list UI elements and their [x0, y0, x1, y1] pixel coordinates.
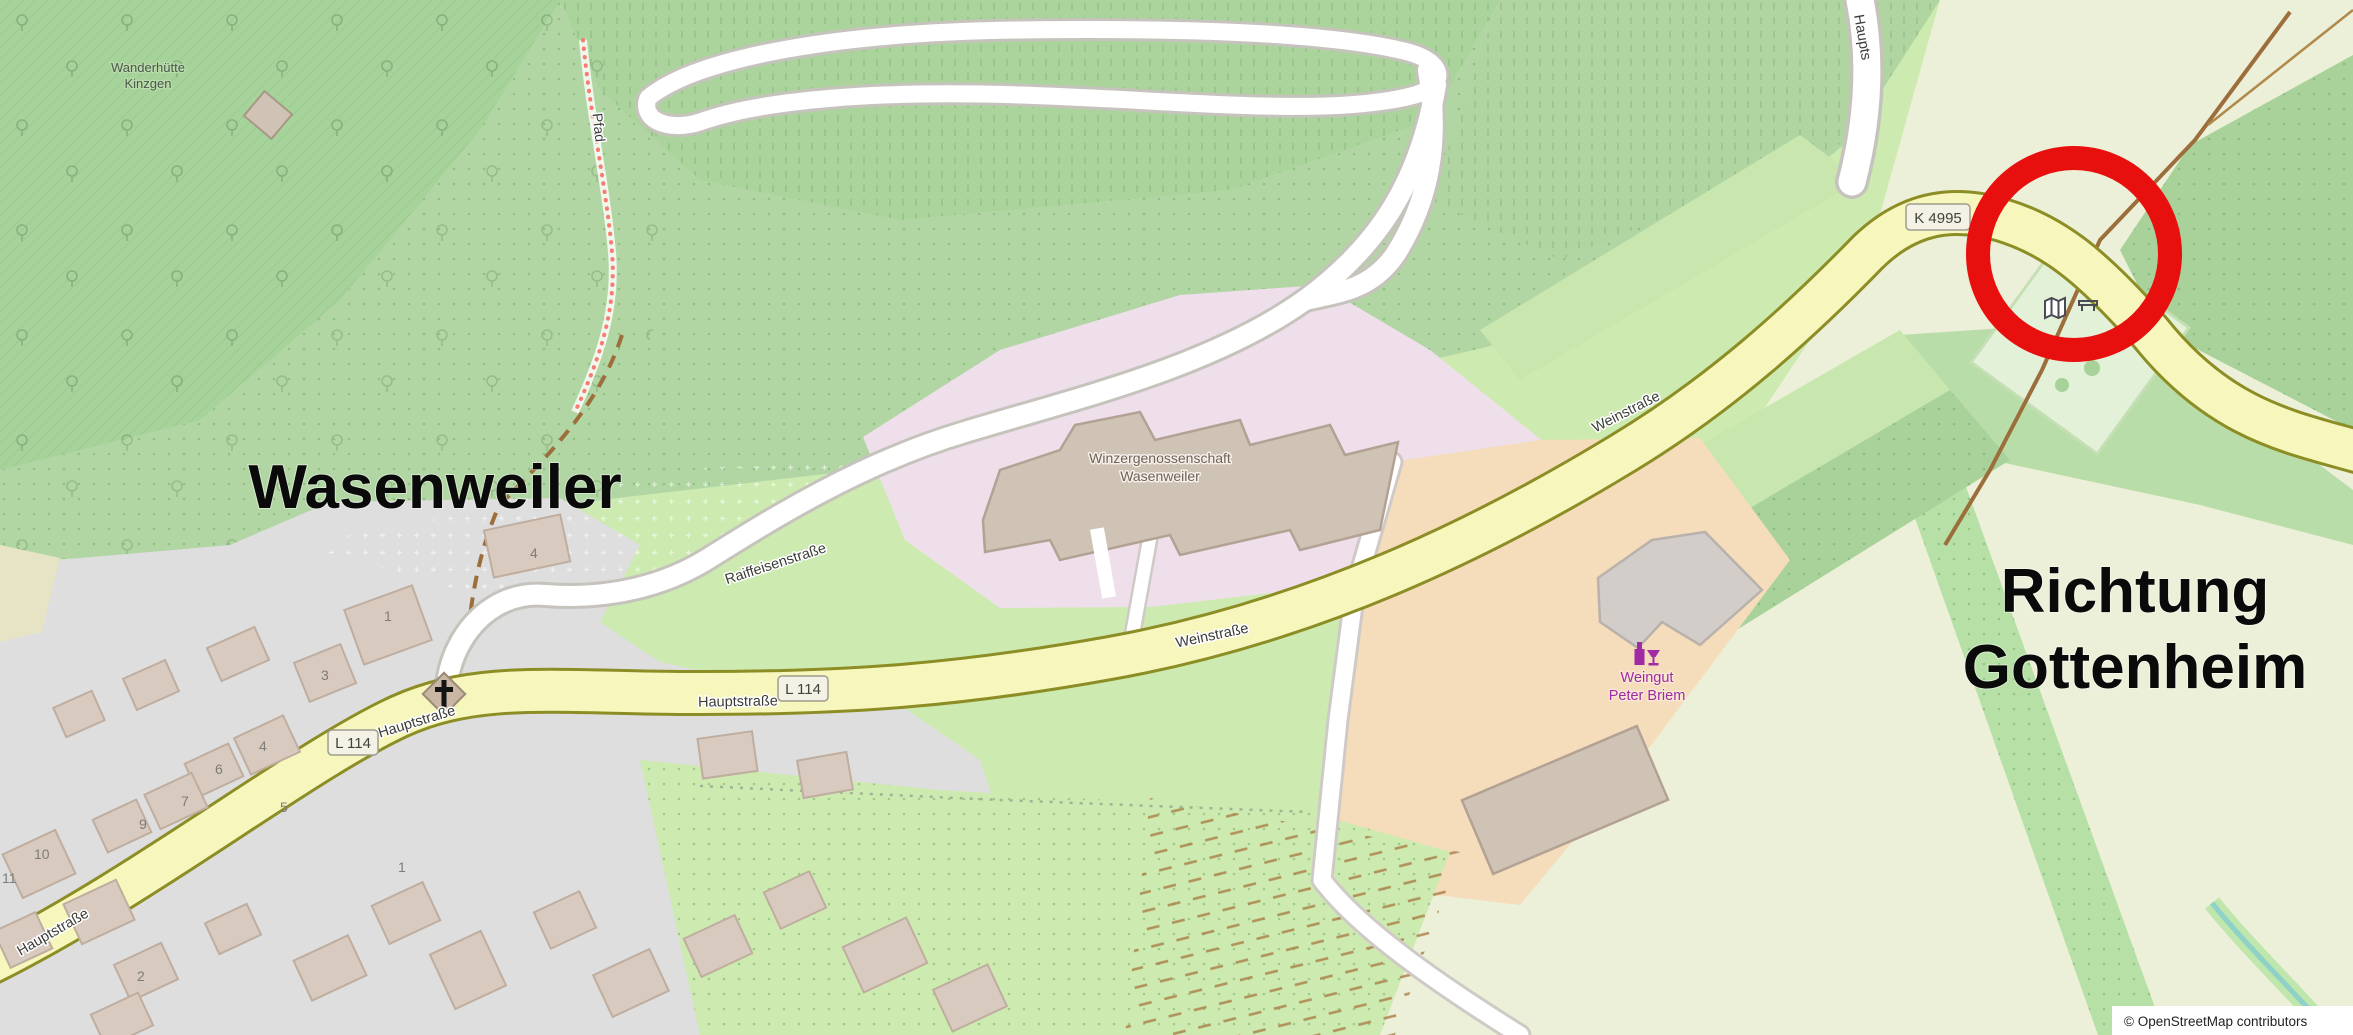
- winery-label-line2: Peter Briem: [1609, 688, 1686, 704]
- attribution-text: © OpenStreetMap contributors: [2124, 1014, 2308, 1029]
- street-label-hauptstrasse-center: Hauptstraße: [698, 693, 778, 710]
- house-number: 5: [280, 799, 288, 815]
- building: [697, 731, 757, 778]
- tree-icon: [2084, 360, 2100, 376]
- tree-icon: [2055, 378, 2069, 392]
- hut-label-line2: Kinzgen: [125, 76, 172, 91]
- route-badge-text: L 114: [785, 681, 821, 698]
- winery-coop-label-line2: Wasenweiler: [1120, 468, 1200, 484]
- attribution-bar: © OpenStreetMap contributors: [2112, 1006, 2353, 1035]
- hut-label-line1: Wanderhütte: [111, 60, 185, 75]
- house-number: 11: [2, 870, 17, 886]
- direction-annotation-line2: Gottenheim: [1963, 633, 2307, 702]
- house-number: 1: [398, 859, 406, 875]
- house-number: 6: [215, 761, 223, 777]
- house-number: 3: [321, 667, 329, 683]
- route-badge-l114-center: L 114: [778, 676, 828, 701]
- house-number: 4: [259, 738, 267, 754]
- house-number: 1: [384, 608, 392, 624]
- house-number: 9: [139, 816, 147, 832]
- town-annotation: Wasenweiler: [248, 453, 621, 522]
- direction-annotation-line1: Richtung: [2001, 557, 2270, 626]
- route-badge-l114-west: L 114: [328, 730, 378, 755]
- map-board-icon: [2045, 298, 2065, 318]
- building: [797, 752, 853, 798]
- winery-coop-label-line1: Winzergenossenschaft: [1089, 450, 1231, 466]
- street-label-pfad: Pfad: [590, 112, 609, 142]
- house-number: 10: [34, 846, 50, 862]
- route-badge-text: K 4995: [1914, 210, 1962, 227]
- house-number: 7: [181, 793, 189, 809]
- route-badge-k4995: K 4995: [1906, 204, 1970, 230]
- map-canvas: 4 1 3 4 6 7 9 5 10 11 1 2 Wanderhütte Ki…: [0, 0, 2353, 1035]
- house-number: 4: [530, 545, 538, 561]
- house-number: 2: [137, 968, 145, 984]
- route-badge-text: L 114: [335, 735, 371, 752]
- winery-label-line1: Weingut: [1621, 670, 1674, 686]
